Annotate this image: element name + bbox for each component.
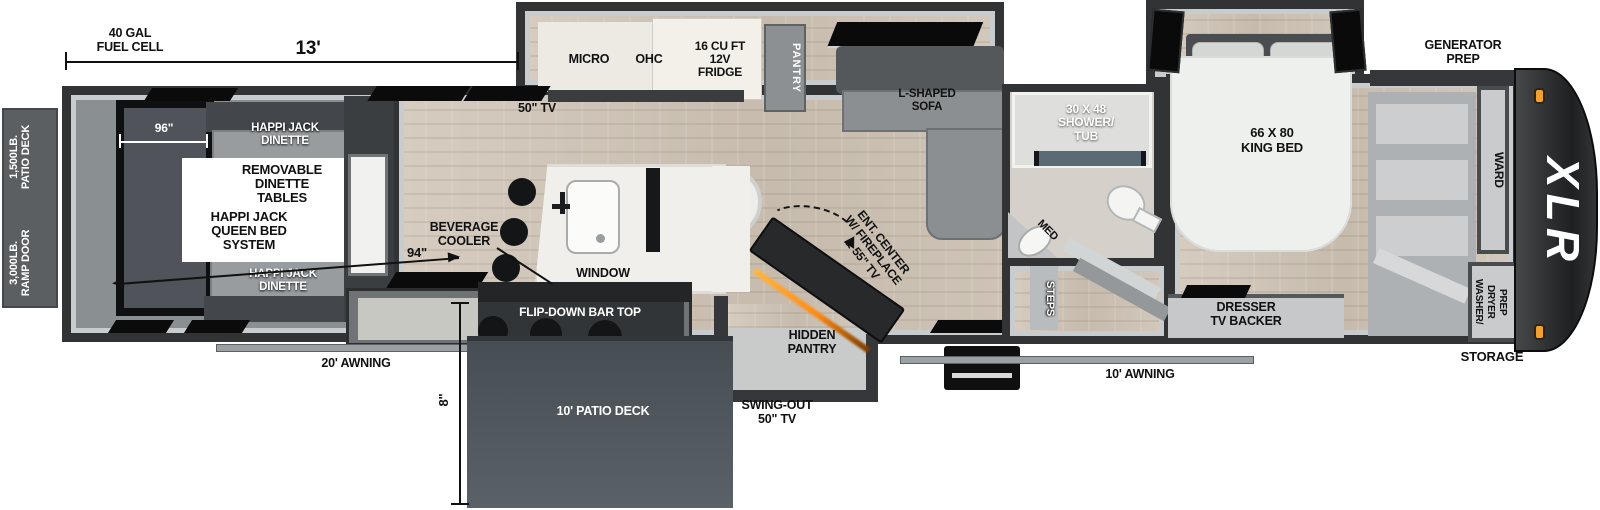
clearance-light-top [1534, 88, 1545, 104]
deck-depth-label: 8" [437, 390, 457, 410]
sofa-chaise [926, 128, 1006, 240]
swing-out-tv-label: SWING-OUT 50" TV [728, 398, 826, 432]
floorplan: 1,500LB. PATIO DECK 3,000LB. RAMP DOOR R… [0, 0, 1600, 510]
island-cooktop [646, 168, 660, 252]
king-bed-label: 66 X 80 KING BED [1212, 126, 1332, 160]
entry-steps-tread [952, 373, 1012, 378]
sink-faucet-stem [560, 192, 565, 214]
patio-deck [467, 336, 733, 508]
bedroom-slide-window-right [1329, 9, 1366, 74]
brand-logo: XLR [1534, 136, 1588, 288]
sofa-back [836, 46, 1004, 94]
garage-width-dim-tick-right [206, 134, 208, 148]
flip-bar-label: FLIP-DOWN BAR TOP [498, 306, 662, 322]
pantry-label: PANTRY [768, 30, 802, 106]
sofa-window [827, 22, 984, 48]
garage-length-dim-tick-left [65, 52, 67, 70]
micro-label: MICRO [556, 52, 622, 67]
garage-side-window [184, 320, 250, 333]
garage-length-label: 13' [286, 38, 330, 58]
ramp-door-rating-label: 3,000LB. RAMP DOOR [8, 220, 52, 306]
steps-label: STEPS [1032, 270, 1056, 328]
garage-tv-50 [367, 86, 470, 101]
island-return-counter [712, 166, 750, 292]
closet-shelf [1376, 216, 1468, 256]
ohc-label: OHC [620, 52, 678, 67]
island-sink [566, 180, 620, 254]
closet-shelf [1376, 160, 1468, 200]
hidden-pantry-wall-right [866, 334, 878, 402]
shower-label: 30 X 48 SHOWER/ TUB [1040, 103, 1132, 151]
rear-awning-label: 20' AWNING [308, 356, 404, 372]
bedroom-slide-window-left [1147, 9, 1184, 74]
entry-steps [944, 346, 1020, 390]
tv-50-label: 50" TV [500, 101, 574, 116]
kitchen-cabinet-strip [548, 90, 744, 102]
garage-length-dim-line [66, 61, 518, 63]
garage-diagonal-arrow-left-icon [112, 278, 125, 289]
removable-tables-note: REMOVABLE DINETTE TABLES [212, 163, 352, 207]
garage-tv-50b [463, 86, 550, 101]
washer-dryer-label: WASHER/ DRYER PREP [1472, 266, 1514, 338]
deck-depth-dim-tick-top [451, 302, 469, 304]
entry-awning-label: 10' AWNING [1088, 367, 1192, 383]
patio-deck-label: 10' PATIO DECK [538, 404, 668, 420]
rear-awning-bar [216, 344, 470, 352]
garage-width-dim-line [120, 141, 208, 143]
deck-depth-dim-tick-bottom [451, 503, 469, 505]
island-stool [508, 178, 536, 206]
beverage-cooler-label: BEVERAGE COOLER [414, 220, 514, 252]
storage-label: STORAGE [1446, 350, 1538, 366]
garage-roof-vent [144, 88, 238, 101]
shower-glass [1034, 151, 1146, 166]
wardrobe-label: WARD [1481, 94, 1505, 246]
queen-bed-note: HAPPI JACK QUEEN BED SYSTEM [184, 210, 314, 254]
sofa-label: L-SHAPED SOFA [878, 88, 976, 122]
flip-bar-support [358, 298, 480, 340]
garage-width-dim-label: 96" [145, 122, 183, 137]
garage-width-dim-tick-left [119, 134, 121, 148]
patio-deck-rating-label: 1,500LB. PATIO DECK [8, 114, 52, 200]
deck-depth-dim-line [459, 303, 461, 505]
garage-partition-window [348, 154, 388, 276]
dresser-label: DRESSER TV BACKER [1194, 300, 1298, 334]
front-top-wall [1370, 70, 1522, 86]
garage-length-dim-tick-right [517, 52, 519, 70]
garage-diagonal-arrow-right-icon [448, 252, 461, 263]
garage-rear-window [108, 320, 174, 333]
closet-shelf [1376, 104, 1468, 144]
clearance-light-bottom [1534, 324, 1545, 340]
hidden-pantry-label: HIDDEN PANTRY [768, 328, 856, 364]
window-label: WINDOW [568, 266, 638, 281]
bar-counter [478, 282, 692, 302]
fuel-cell-label: 40 GAL FUEL CELL [88, 26, 172, 58]
dresser-tv [1181, 285, 1251, 298]
entry-awning-bar [900, 356, 1254, 364]
sink-drain [596, 234, 605, 243]
garage-dinette-top-label: HAPPI JACK DINETTE [234, 122, 336, 154]
fridge-label: 16 CU FT 12V FRIDGE [682, 40, 758, 82]
generator-prep-label: GENERATOR PREP [1408, 38, 1518, 70]
